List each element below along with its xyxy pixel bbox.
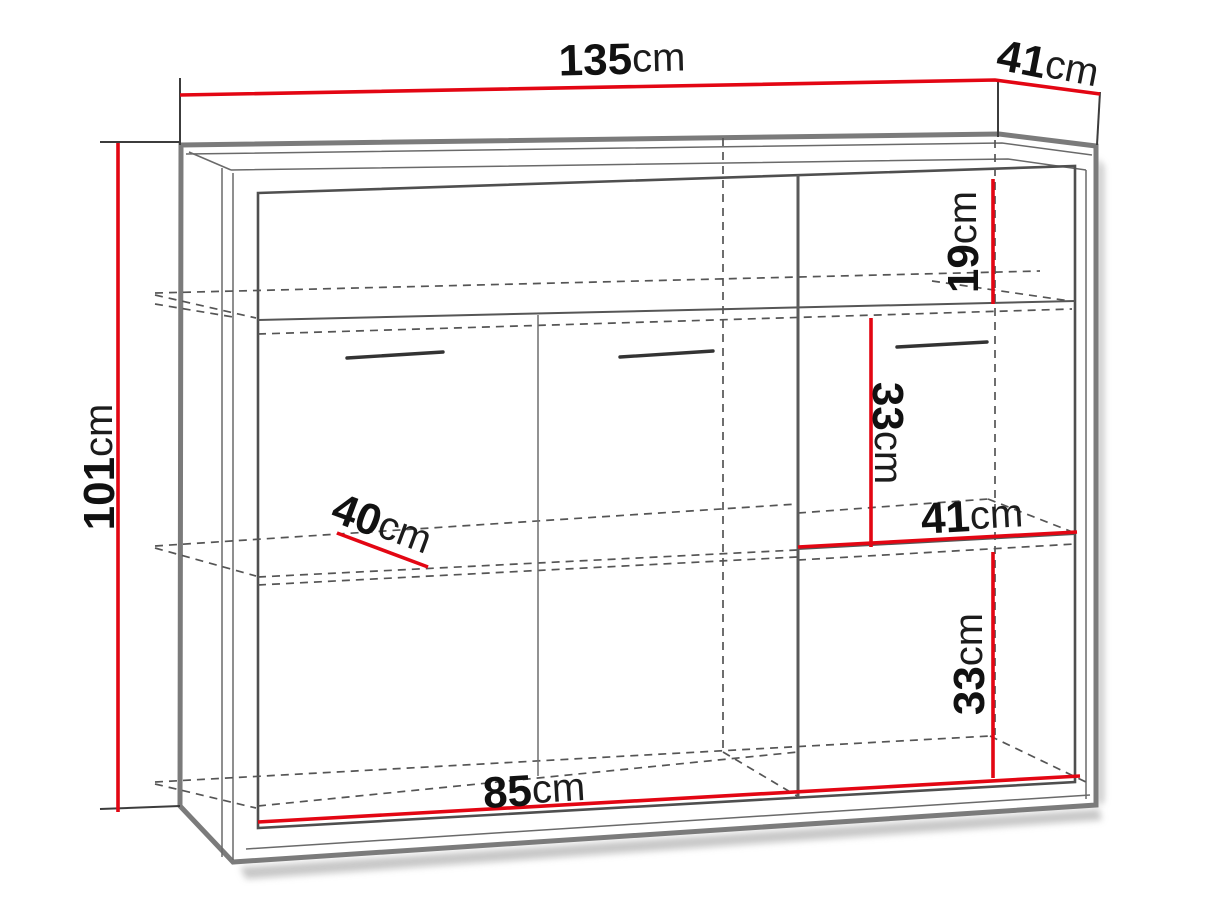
label-middle-compartment: 33cm (864, 382, 913, 484)
label-bottom-compartment: 33cm (945, 613, 994, 715)
label-overall-height: 101cm (75, 404, 124, 531)
label-right-shelf-width: 41cm (920, 489, 1025, 543)
label-interior-width: 85cm (481, 762, 586, 817)
label-top-compartment: 19cm (939, 191, 988, 293)
label-overall-width: 135cm (558, 33, 686, 85)
diagram-canvas: 135cm 41cm 101cm 19cm 33cm 41cm 33cm 40c… (0, 0, 1221, 915)
dim-line-width-depth (180, 80, 1100, 95)
cabinet-dimension-diagram: 135cm 41cm 101cm 19cm 33cm 41cm 33cm 40c… (0, 0, 1221, 915)
